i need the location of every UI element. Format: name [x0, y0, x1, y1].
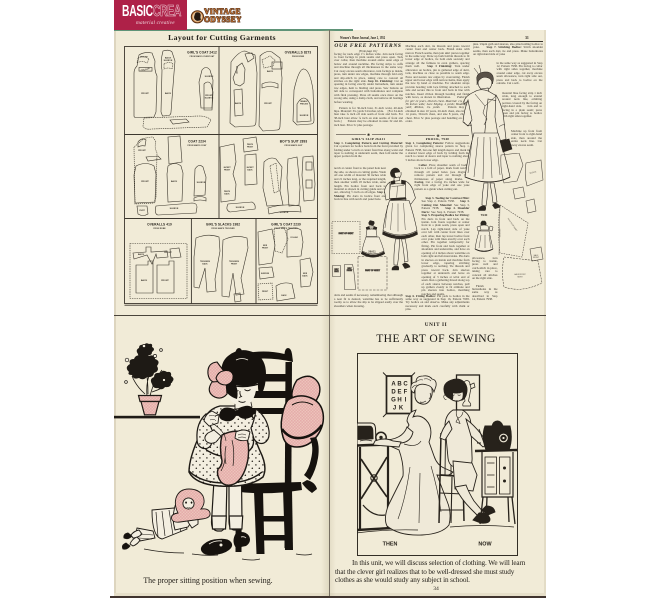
- svg-text:GIRL’S SLACKS 1982: GIRL’S SLACKS 1982: [206, 223, 240, 227]
- svg-text:BACK: BACK: [247, 168, 253, 171]
- svg-text:SLEEVES: SLEEVES: [261, 273, 270, 275]
- svg-text:COLLAR: COLLAR: [290, 236, 298, 239]
- svg-text:BACK: BACK: [281, 294, 287, 297]
- svg-text:FROM ROBE: FROM ROBE: [153, 228, 166, 230]
- svg-text:PART OF SKIRT: PART OF SKIRT: [365, 269, 381, 272]
- svg-text:HALF BACK SKIRT: HALF BACK SKIRT: [507, 217, 519, 232]
- svg-text:BACK: BACK: [171, 180, 178, 183]
- svg-text:NOW: NOW: [478, 541, 492, 547]
- svg-text:BOY’S SUIT 2893: BOY’S SUIT 2893: [280, 139, 308, 143]
- svg-text:FRONT: FRONT: [141, 93, 149, 95]
- svg-text:SLEEVE: SLEEVE: [529, 171, 537, 175]
- svg-text:BACK: BACK: [235, 102, 242, 105]
- svg-text:SKIRT: SKIRT: [517, 276, 523, 278]
- svg-text:SLEEVE: SLEEVE: [170, 208, 179, 210]
- svg-text:BACK: BACK: [138, 253, 145, 256]
- svg-text:SLEEVE: SLEEVE: [197, 182, 206, 184]
- svg-text:THEN: THEN: [382, 541, 397, 547]
- svg-text:FRONT: FRONT: [138, 150, 146, 152]
- svg-text:I: I: [404, 397, 406, 403]
- svg-text:FRONT: FRONT: [347, 270, 353, 272]
- svg-text:HALF: HALF: [347, 267, 351, 270]
- svg-text:FROM MAN’S SUIT: FROM MAN’S SUIT: [285, 144, 304, 147]
- svg-text:26A11: 26A11: [368, 250, 376, 254]
- svg-text:H: H: [397, 397, 401, 403]
- svg-text:FROM MAN’S TROUSER: FROM MAN’S TROUSER: [274, 227, 298, 230]
- svg-text:K: K: [398, 405, 403, 411]
- svg-text:FROM MAN’S COAT: FROM MAN’S COAT: [188, 144, 208, 147]
- svg-text:SLEEVE: SLEEVE: [205, 76, 214, 78]
- svg-text:SLEEVE: SLEEVE: [300, 115, 309, 117]
- svg-text:C: C: [403, 381, 408, 387]
- svg-text:COAT 2234: COAT 2234: [188, 139, 206, 143]
- svg-text:OVERALLS 419: OVERALLS 419: [147, 223, 172, 227]
- svg-text:FRONT: FRONT: [533, 257, 540, 259]
- svg-text:FRONT: FRONT: [247, 146, 254, 148]
- svg-text:B: B: [397, 381, 402, 387]
- svg-text:FRONT: FRONT: [262, 247, 269, 249]
- svg-text:FRONT: FRONT: [140, 57, 148, 59]
- svg-text:FROM MAN’S OVERCOAT: FROM MAN’S OVERCOAT: [190, 55, 215, 58]
- svg-text:HALF: HALF: [334, 268, 338, 271]
- svg-text:SELVEDGE: SELVEDGE: [498, 229, 500, 237]
- svg-text:GIRL’S COAT 2412: GIRL’S COAT 2412: [187, 51, 217, 55]
- svg-text:SLEEVE: SLEEVE: [205, 98, 214, 100]
- svg-text:FRONT: FRONT: [161, 280, 169, 282]
- svg-text:BACK: BACK: [224, 192, 230, 195]
- svg-text:BACK: BACK: [267, 70, 274, 73]
- svg-text:BACK: BACK: [302, 274, 308, 277]
- svg-text:GIRL’S COAT 2239: GIRL’S COAT 2239: [271, 223, 301, 227]
- svg-text:7940: 7940: [481, 213, 488, 217]
- svg-text:CUFF: CUFF: [139, 210, 145, 212]
- svg-text:FRONT: FRONT: [141, 181, 149, 183]
- svg-text:BACK: BACK: [165, 92, 172, 95]
- svg-text:FROM ROBE: FROM ROBE: [292, 56, 305, 58]
- svg-text:SLEEVE: SLEEVE: [164, 60, 173, 62]
- svg-text:J: J: [392, 405, 395, 411]
- svg-text:PIECES: PIECES: [300, 104, 309, 106]
- svg-text:D: D: [391, 389, 396, 395]
- svg-text:SLEEVE: SLEEVE: [280, 212, 289, 214]
- svg-text:FRONT: FRONT: [262, 291, 269, 293]
- svg-text:FRONT: FRONT: [235, 66, 237, 74]
- svg-text:E: E: [397, 389, 401, 395]
- svg-text:FRONT: FRONT: [231, 263, 238, 265]
- svg-text:SLEEVE: SLEEVE: [236, 207, 245, 209]
- svg-text:OVERALLS 8273: OVERALLS 8273: [285, 51, 312, 55]
- svg-text:F: F: [403, 389, 407, 395]
- svg-text:FRONT: FRONT: [264, 103, 272, 105]
- svg-text:FRONT: FRONT: [224, 169, 231, 171]
- svg-text:FROM MAN’S TROUSER: FROM MAN’S TROUSER: [211, 227, 235, 230]
- svg-text:PART OF SKIRT: PART OF SKIRT: [339, 232, 355, 235]
- svg-text:COLLAR: COLLAR: [140, 67, 150, 72]
- svg-text:BACK: BACK: [141, 279, 148, 282]
- svg-text:A: A: [391, 381, 396, 387]
- svg-text:FRONT: FRONT: [164, 252, 172, 254]
- svg-text:G: G: [391, 397, 396, 403]
- svg-text:BACK: BACK: [202, 262, 208, 265]
